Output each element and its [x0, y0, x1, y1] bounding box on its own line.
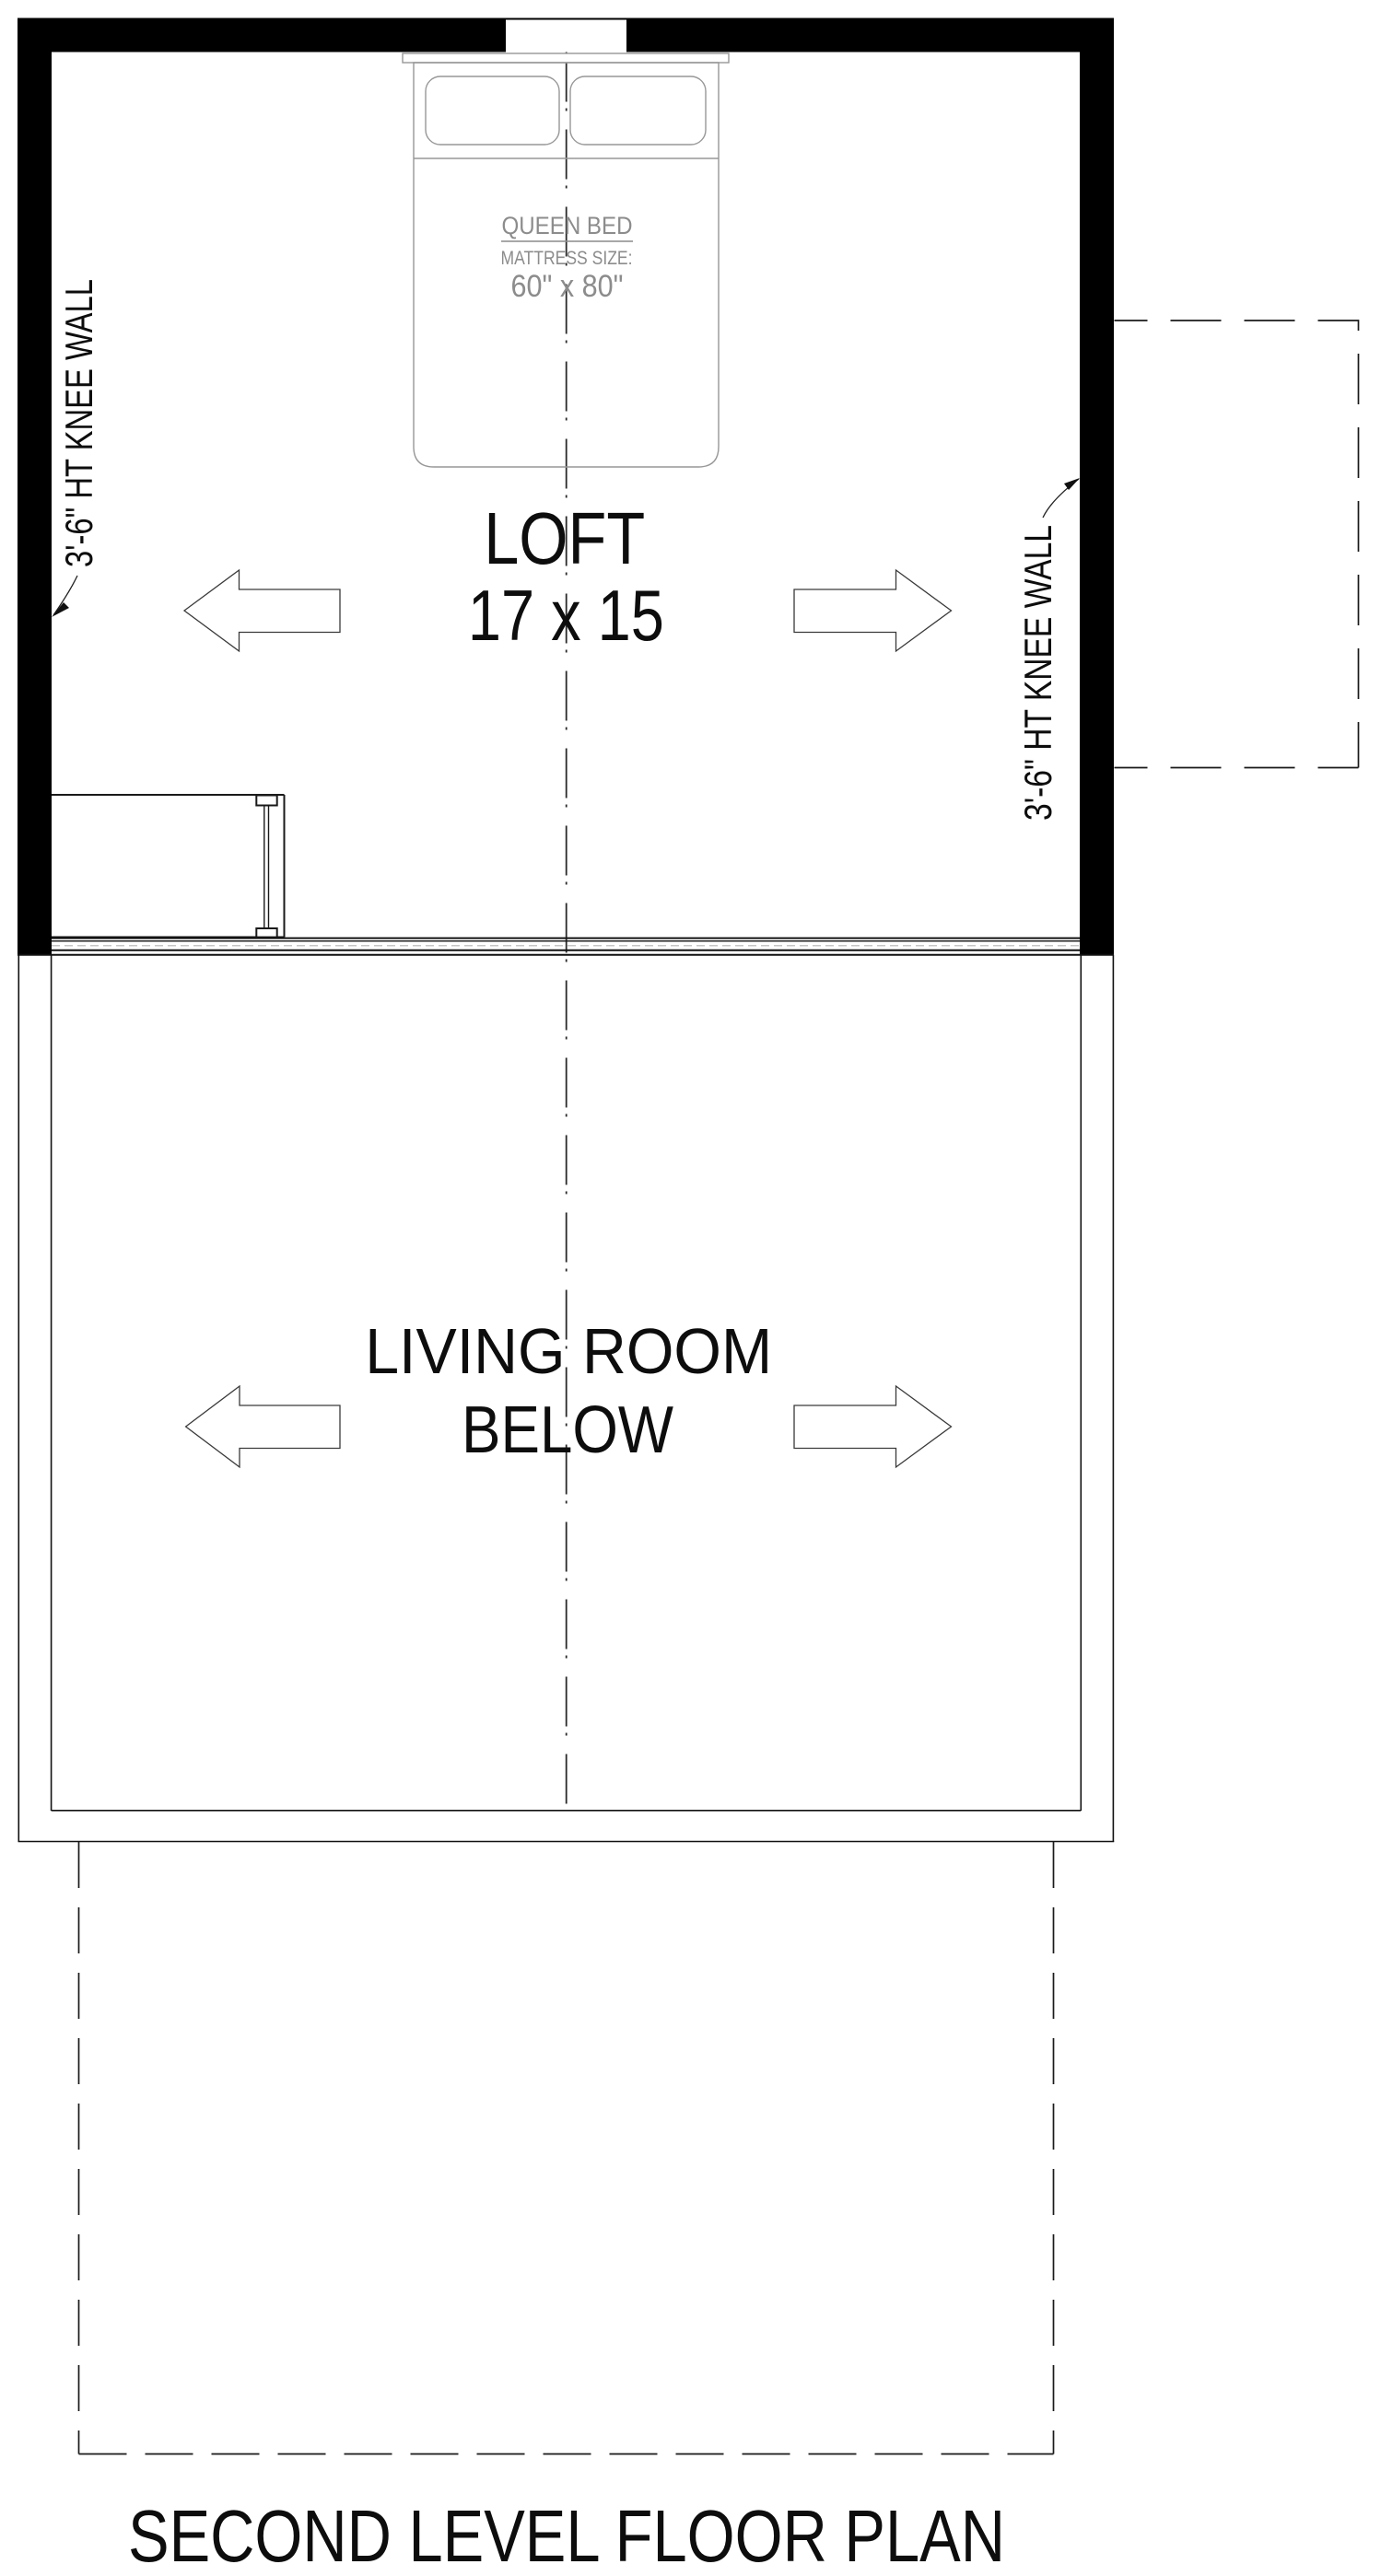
- svg-text:LOFT: LOFT: [484, 497, 645, 579]
- svg-text:LIVING ROOM: LIVING ROOM: [365, 1315, 772, 1387]
- svg-text:SECOND LEVEL FLOOR PLAN: SECOND LEVEL FLOOR PLAN: [128, 2495, 1005, 2576]
- svg-text:17 x 15: 17 x 15: [468, 575, 664, 656]
- svg-text:BELOW: BELOW: [462, 1393, 673, 1467]
- svg-text:60" x 80": 60" x 80": [511, 269, 624, 304]
- svg-text:MATTRESS SIZE:: MATTRESS SIZE:: [501, 248, 633, 269]
- svg-text:3'-6" HT KNEE WALL: 3'-6" HT KNEE WALL: [1016, 525, 1059, 821]
- svg-text:QUEEN BED: QUEEN BED: [502, 212, 633, 239]
- svg-text:3'-6" HT KNEE WALL: 3'-6" HT KNEE WALL: [57, 279, 100, 567]
